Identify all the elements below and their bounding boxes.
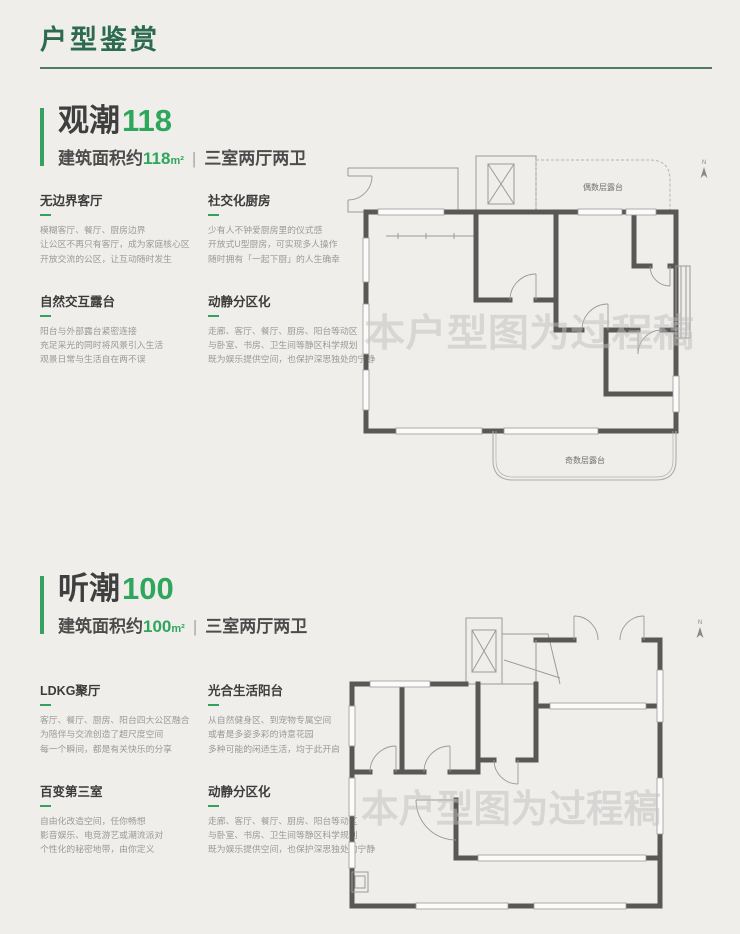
section-2-features: LDKG聚厅 客厅、餐厅、厨房、阳台四大公区融合 为陪伴与交流创造了超尺度空间 … <box>40 680 386 857</box>
terrace-bottom-label: 奇数层露台 <box>565 455 605 465</box>
svg-text:N: N <box>698 620 702 626</box>
green-dash <box>208 315 219 317</box>
page-title: 户型鉴赏 <box>40 18 160 57</box>
green-dash <box>40 214 51 216</box>
green-dash <box>208 805 219 807</box>
terrace-top-label: 偶数层露台 <box>583 182 623 192</box>
green-dash <box>40 315 51 317</box>
section-1-title: 观潮118 <box>58 104 306 138</box>
draft-watermark: 本户型图为过程稿 <box>364 313 694 355</box>
accent-bar <box>40 108 44 166</box>
accent-bar <box>40 576 44 634</box>
feature-borderless-living: 无边界客厅 模糊客厅、餐厅、厨房边界 让公区不再只有客厅，成为家庭核心区 开放交… <box>40 190 208 266</box>
feature-natural-terrace: 自然交互露台 阳台与外部露台紧密连接 充足采光的同时将风景引入生活 观景日常与生… <box>40 291 208 367</box>
floor-plan-100: N <box>338 610 720 932</box>
floor-plan-118: N 偶数层露台 <box>338 148 720 486</box>
section-1-features: 无边界客厅 模糊客厅、餐厅、厨房边界 让公区不再只有客厅，成为家庭核心区 开放交… <box>40 190 386 367</box>
section-1-name: 观潮 <box>58 103 120 138</box>
green-dash <box>208 704 219 706</box>
section-2-name: 听潮 <box>58 571 120 606</box>
section-2-header: 听潮100 建筑面积约100m²|三室两厅两卫 <box>40 572 307 637</box>
section-2-subtitle: 建筑面积约100m²|三室两厅两卫 <box>58 612 307 637</box>
green-dash <box>40 805 51 807</box>
green-dash <box>40 704 51 706</box>
section-1-subtitle: 建筑面积约118m²|三室两厅两卫 <box>58 144 306 169</box>
section-1-number: 118 <box>122 103 172 138</box>
north-arrow-icon: N <box>697 620 704 638</box>
section-1-header: 观潮118 建筑面积约118m²|三室两厅两卫 <box>40 104 306 169</box>
draft-watermark: 本户型图为过程稿 <box>361 789 661 831</box>
brochure-page: 户型鉴赏 观潮118 建筑面积约118m²|三室两厅两卫 无边界客厅 模糊客厅、… <box>0 0 740 934</box>
title-divider <box>40 67 712 69</box>
floor-plan-100-drawing: N <box>338 610 720 932</box>
feature-versatile-room: 百变第三室 自由化改造空间，任你畅想 影音娱乐、电竞游艺或潮流派对 个性化的秘密… <box>40 781 208 857</box>
section-2-title: 听潮100 <box>58 572 307 606</box>
feature-ldkg-hall: LDKG聚厅 客厅、餐厅、厨房、阳台四大公区融合 为陪伴与交流创造了超尺度空间 … <box>40 680 208 756</box>
floor-plan-118-drawing: N 偶数层露台 <box>338 148 720 486</box>
svg-text:N: N <box>702 160 706 166</box>
north-arrow-icon: N <box>701 160 708 178</box>
section-2-number: 100 <box>122 571 174 606</box>
green-dash <box>208 214 219 216</box>
